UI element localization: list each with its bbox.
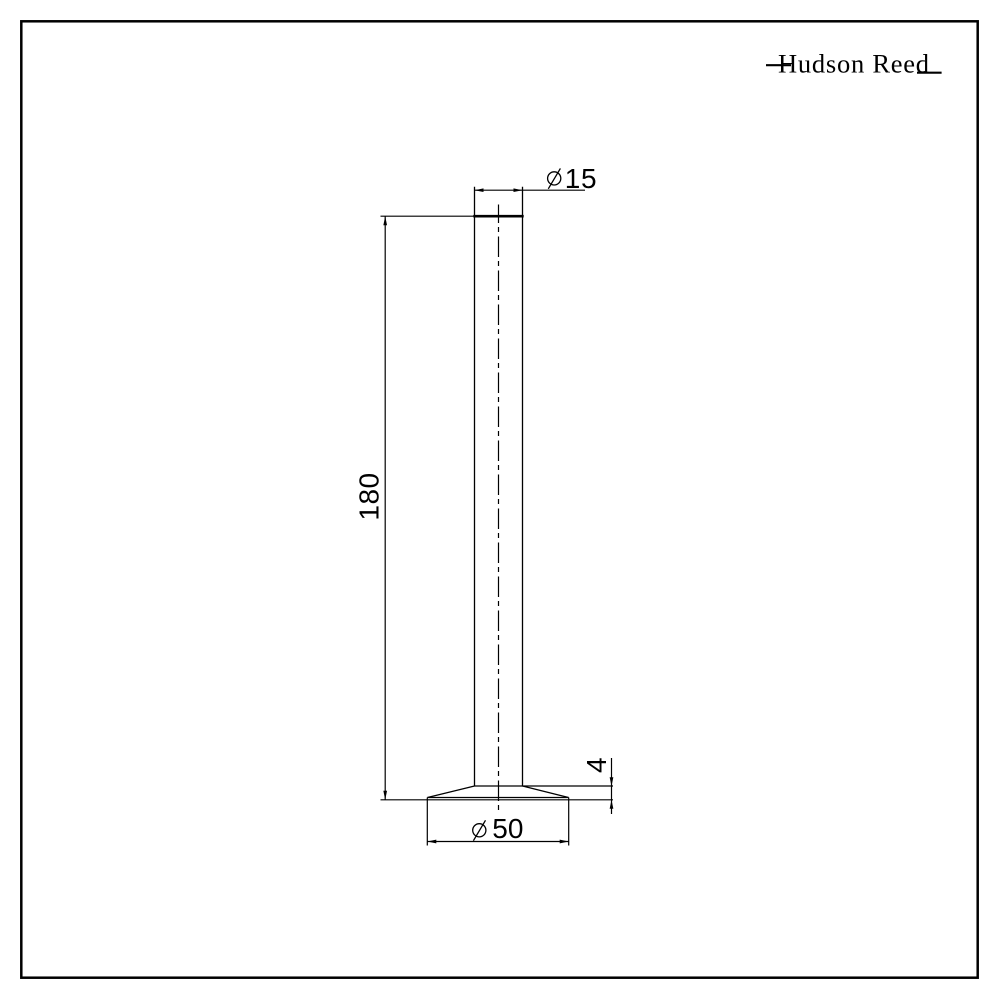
svg-text:50: 50 bbox=[492, 813, 523, 844]
svg-text:15: 15 bbox=[565, 163, 597, 194]
svg-text:180: 180 bbox=[354, 472, 385, 520]
svg-text:4: 4 bbox=[581, 757, 612, 773]
svg-text:Hudson Reed: Hudson Reed bbox=[778, 49, 930, 79]
